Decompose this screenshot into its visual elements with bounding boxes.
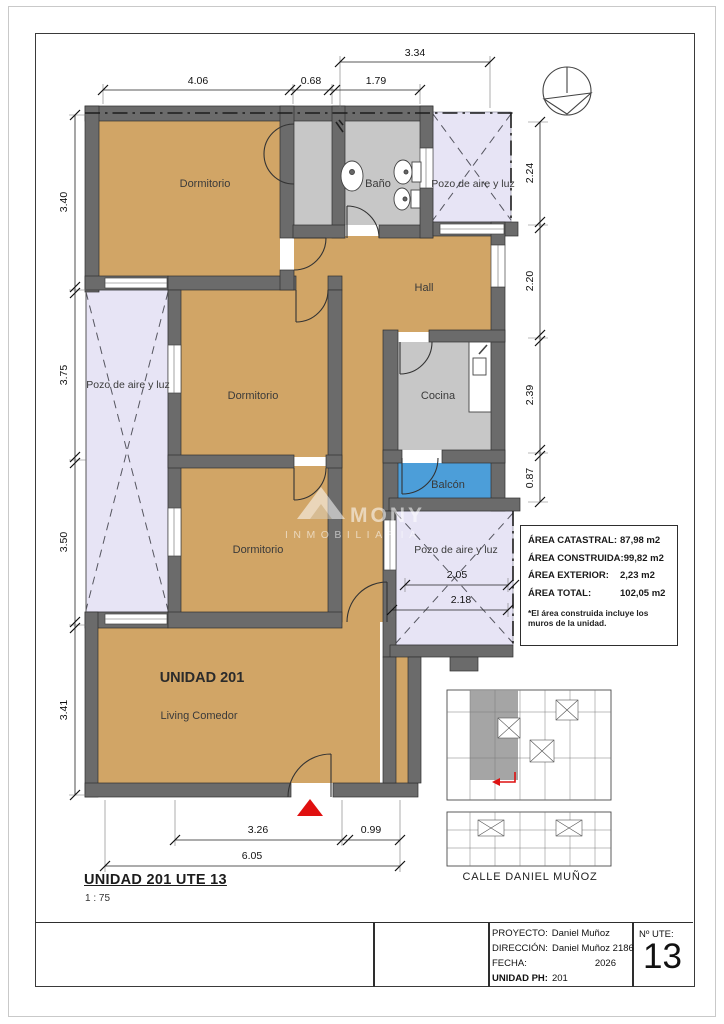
- keyplan-street-label: CALLE DANIEL MUÑOZ: [462, 870, 597, 883]
- room-dormitorio-1: [99, 121, 280, 278]
- label-hall: Hall: [415, 282, 434, 294]
- dim-left-c: 3.50: [58, 532, 70, 553]
- area-value: 2,23 m2: [620, 570, 655, 581]
- dim-top-total: 3.34: [405, 47, 426, 59]
- label-dormitorio-2: Dormitorio: [228, 390, 279, 402]
- drawing-sheet: 3.34 4.06 0.68 1.79 3.40 3.75 3.50 3.41 …: [0, 0, 724, 1024]
- dim-top-c: 1.79: [366, 75, 387, 87]
- area-value: 99,82 m2: [624, 553, 664, 564]
- label-living: Living Comedor: [160, 710, 237, 722]
- area-label: ÁREA EXTERIOR:: [528, 570, 620, 581]
- area-row-construida: ÁREA CONSTRUIDA: 99,82 m2: [528, 553, 672, 564]
- area-note: *El área construida incluye los muros de…: [528, 608, 672, 629]
- proyecto-value: Daniel Muñoz: [552, 926, 610, 941]
- title-block: PROYECTO: Daniel Muñoz DIRECCIÓN: Daniel…: [35, 922, 693, 987]
- kitchen-counter: [469, 342, 491, 412]
- dim-left-b: 3.75: [58, 365, 70, 386]
- tb-row-proyecto: PROYECTO: Daniel Muñoz: [492, 926, 630, 941]
- label-dormitorio-1: Dormitorio: [180, 178, 231, 190]
- dim-right-d: 0.87: [524, 468, 536, 489]
- label-cocina: Cocina: [421, 390, 456, 402]
- entry-arrow: [297, 799, 323, 816]
- pozo-top-right-fill: [433, 112, 511, 222]
- unidad-label: UNIDAD PH:: [492, 971, 548, 986]
- tb-row-fecha: FECHA: 2026: [492, 956, 630, 971]
- dim-right-c: 2.39: [524, 385, 536, 406]
- dim-right-a: 2.24: [524, 163, 536, 184]
- dim-left-d: 3.41: [58, 700, 70, 721]
- area-label: ÁREA CONSTRUIDA:: [528, 553, 624, 564]
- fecha-label: FECHA:: [492, 956, 527, 971]
- unidad-value: 201: [552, 971, 568, 986]
- fecha-value: 2026: [595, 956, 616, 971]
- dim-bottom-a: 3.26: [248, 824, 269, 836]
- plan-title: UNIDAD 201 UTE 13: [84, 872, 227, 888]
- plan-scale: 1 : 75: [85, 893, 110, 904]
- area-label: ÁREA TOTAL:: [528, 588, 620, 599]
- dim-pozo-a: 2.05: [447, 569, 468, 581]
- closet-area: [294, 121, 332, 225]
- direccion-label: DIRECCIÓN:: [492, 941, 548, 956]
- label-pozo-bottom-right: Pozo de aire y luz: [414, 544, 497, 556]
- tb-row-direccion: DIRECCIÓN: Daniel Muñoz 2186: [492, 941, 630, 956]
- area-row-catastral: ÁREA CATASTRAL: 87,98 m2: [528, 535, 672, 546]
- area-row-exterior: ÁREA EXTERIOR: 2,23 m2: [528, 570, 672, 581]
- ute-value: 13: [632, 937, 693, 977]
- area-note-line2: muros de la unidad.: [528, 618, 672, 628]
- keyplan: CALLE DANIEL MUÑOZ: [447, 690, 611, 883]
- room-fills: [86, 112, 513, 783]
- tb-row-unidad: UNIDAD PH: 201: [492, 971, 630, 986]
- dim-top-b: 0.68: [301, 75, 322, 87]
- room-living: [98, 612, 380, 783]
- title-block-divider: [488, 923, 490, 987]
- label-unidad: UNIDAD 201: [160, 670, 245, 686]
- entry-strip: [396, 657, 408, 783]
- label-pozo-left: Pozo de aire y luz: [86, 379, 169, 391]
- area-label: ÁREA CATASTRAL:: [528, 535, 620, 546]
- proyecto-label: PROYECTO:: [492, 926, 548, 941]
- floor-plan-svg: 3.34 4.06 0.68 1.79 3.40 3.75 3.50 3.41 …: [0, 0, 724, 1024]
- label-dormitorio-3: Dormitorio: [233, 544, 284, 556]
- dim-top-a: 4.06: [188, 75, 209, 87]
- label-bano: Baño: [365, 178, 391, 190]
- title-block-info: PROYECTO: Daniel Muñoz DIRECCIÓN: Daniel…: [492, 926, 630, 986]
- hall-corridor: [342, 290, 383, 622]
- dim-bottom-b: 0.99: [361, 824, 382, 836]
- dim-left-a: 3.40: [58, 192, 70, 213]
- area-note-line1: *El área construida incluye los: [528, 608, 672, 618]
- area-value: 87,98 m2: [620, 535, 660, 546]
- area-row-total: ÁREA TOTAL: 102,05 m2: [528, 588, 672, 599]
- label-balcon: Balcón: [431, 479, 465, 491]
- watermark-name: MONY: [350, 504, 425, 527]
- title-block-divider: [373, 923, 375, 987]
- watermark-tagline: INMOBILIARIA: [285, 529, 422, 541]
- label-pozo-top-right: Pozo de aire y luz: [431, 178, 514, 190]
- dim-pozo-b: 2.18: [451, 594, 472, 606]
- area-value: 102,05 m2: [620, 588, 665, 599]
- dim-right-b: 2.20: [524, 271, 536, 292]
- dim-bottom-total: 6.05: [242, 850, 263, 862]
- direccion-value: Daniel Muñoz 2186: [552, 941, 634, 956]
- area-table: ÁREA CATASTRAL: 87,98 m2 ÁREA CONSTRUIDA…: [520, 525, 678, 646]
- north-arrow-icon: [543, 67, 591, 115]
- room-dormitorio-3: [181, 466, 328, 616]
